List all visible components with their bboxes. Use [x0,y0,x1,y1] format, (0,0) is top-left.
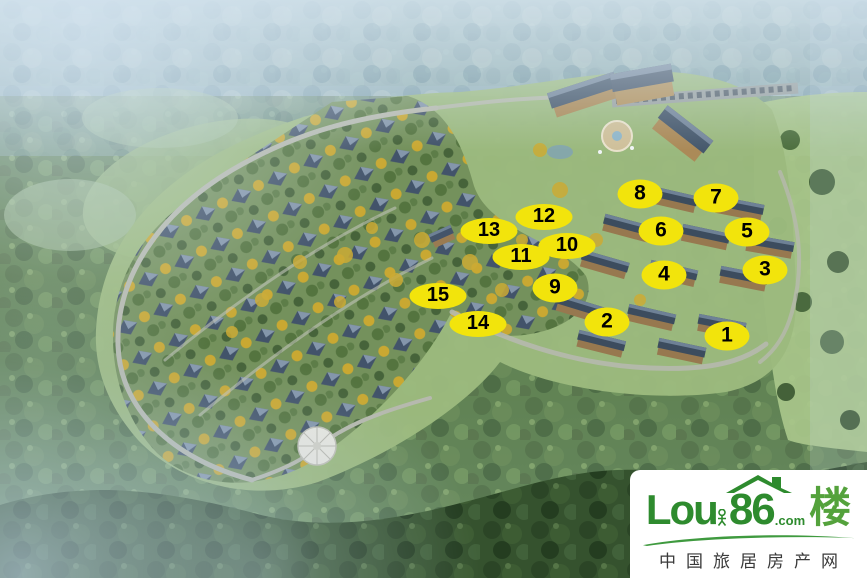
swoosh-underline [641,532,857,546]
building-marker-number: 13 [478,220,500,240]
building-marker-number: 7 [710,187,722,208]
marker-5: 5 [725,218,770,247]
building-marker-number: 9 [549,277,561,298]
building-marker-number: 12 [533,206,555,226]
building-marker-number: 14 [467,313,489,333]
logo-house-86: 86 [729,479,774,529]
marker-1: 1 [705,322,750,351]
marker-14: 14 [450,311,507,337]
marker-4: 4 [642,261,687,290]
marker-3: 3 [743,256,788,285]
house-roof-icon [726,475,794,493]
building-marker-number: 5 [741,221,753,242]
logo-brand-row: Lou 86 .com 楼 [646,479,851,529]
building-marker-number: 15 [427,285,449,305]
logo-text-lou: Lou [646,491,717,529]
logo-tagline: 中国旅居房产网 [649,547,848,572]
building-marker-number: 11 [510,246,531,266]
marker-8: 8 [618,180,663,209]
building-marker-number: 2 [601,311,613,332]
building-marker-number: 4 [658,264,670,285]
building-marker-number: 1 [721,325,733,346]
logo-text-dotcom: .com [775,513,805,528]
marker-15: 15 [410,283,467,309]
marker-2: 2 [585,308,630,337]
person-icon [717,509,727,526]
building-marker-number: 8 [634,183,646,204]
marker-6: 6 [639,217,684,246]
marker-12: 12 [516,204,573,230]
marker-9: 9 [533,274,578,303]
building-marker-number: 6 [655,220,667,241]
aerial-masterplan-image: 1 2 3 4 5 6 7 8 9 10 11 12 13 14 15 [0,0,867,578]
building-marker-number: 3 [759,259,771,280]
marker-13: 13 [461,218,518,244]
marker-11: 11 [493,244,550,270]
marker-7: 7 [694,184,739,213]
logo-hanzi-lou: 楼 [809,488,851,528]
building-marker-number: 10 [556,235,578,255]
lou86-watermark: Lou 86 .com 楼 中国旅居房产网 [630,470,867,578]
